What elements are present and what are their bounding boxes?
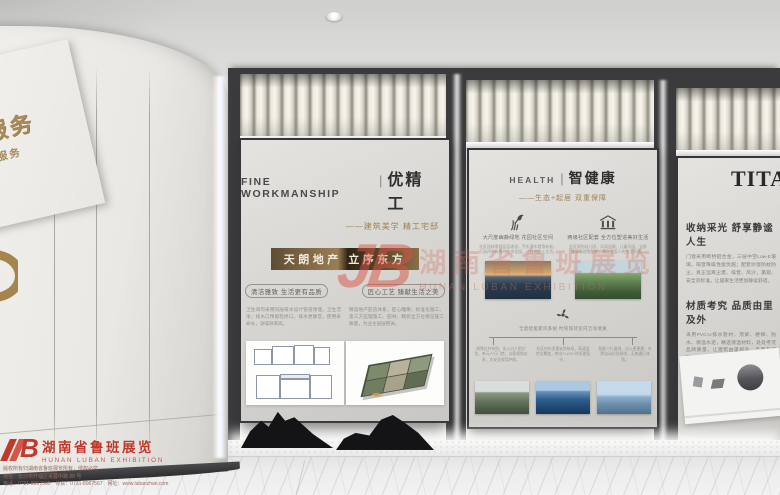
- panel-health: HEALTH | 智健康 ——生态+起居 双重保障 大尺度幽静绿地 花园社区空间…: [467, 148, 659, 429]
- material-samples-photo: [679, 348, 780, 424]
- smart-system-flowchart: 全屋智能新风系统 时刻保持室内洁净清爽 周界红外布防，出入口人脸识别，单元人行门…: [469, 307, 657, 417]
- panel1-para-right: 精选地产匠造体系，匠心雕琢；标准化施工、第三方监理施工、园林、精装全方位保证施工…: [349, 306, 444, 327]
- panel1-title: FINE WORKMANSHIP | 优精工: [241, 166, 441, 214]
- titan-brand-text: TITAN: [731, 166, 780, 192]
- health-left-caption: 大尺度幽静绿地 花园社区空间: [483, 234, 554, 241]
- city-towers-photo: [597, 381, 651, 414]
- flow-caption: 全屋智能新风系统 时刻保持室内洁净清爽: [469, 326, 657, 332]
- gold-logo-fragment: [0, 250, 18, 314]
- panel3-heading-2: 材质考究 品质由里及外: [686, 298, 780, 326]
- led-glow-strip: [658, 80, 668, 456]
- flow-item-1: 周界红外布防，出入口人脸识别，单元人行门禁，访客视频对讲，为安全保驾护航。: [473, 347, 529, 364]
- bird-reeds-icon: [508, 213, 528, 231]
- pleated-valance: [466, 80, 654, 142]
- brand-badge: 天朗地产 立序东方: [271, 248, 420, 270]
- panel1-para-left: 卫生间均采用同层排水设计管道预埋，卫生洁净；排水口预留检修口，排水更静音，使用寿…: [246, 306, 341, 327]
- pool-villa-photo: [536, 381, 590, 414]
- wall-panel-seam: [149, 66, 150, 458]
- panel2-subtitle: ——生态+起居 双重保障: [469, 193, 657, 203]
- panel3-heading-1: 收纳采光 舒享静谧人生: [686, 220, 780, 248]
- panel1-subtitle: ——建筑美学 精工宅邸: [241, 221, 439, 232]
- panel1-title-en: FINE WORKMANSHIP: [241, 176, 374, 200]
- floorplan-3d-image: [346, 341, 444, 405]
- panel3-para-1: 门窗采用断桥铝合金，三层中空Low-E玻璃，隔音降噪性能优越；配套纱窗防蚊防尘，…: [686, 254, 776, 286]
- led-glow-strip: [452, 74, 462, 456]
- pleated-valance: [676, 88, 780, 150]
- pavilion-icon: [598, 213, 618, 231]
- entrance-gate-photo: [475, 381, 529, 414]
- health-left-text: 社区园林景观层层递进，乔木灌木错落有致，打造四季有景的生态花园，让自然融入生活。: [478, 244, 558, 258]
- health-column-community: 两级社区配套 全方位塑造美好生活 社区规划幼儿园、风雨连廊、儿童乐园、全龄健身场…: [568, 213, 648, 299]
- title-divider: |: [560, 171, 563, 186]
- pill-right: 匠心工艺 臻献生活之美: [362, 284, 445, 298]
- service-sign-small-text: 尊享服务: [0, 144, 23, 170]
- flow-item-2: 社区内外多重安防体系，高清监控全覆盖，物业7×24小时巡更值守。: [535, 347, 591, 364]
- led-glow-strip: [212, 76, 228, 458]
- panel1-title-cn: 优精工: [387, 166, 441, 214]
- exhibition-hall-render: FINE WORKMANSHIP | 优精工 ——建筑美学 精工宅邸 天朗地产 …: [0, 0, 780, 495]
- title-divider: |: [379, 173, 382, 188]
- wall-panel-seam: [0, 414, 223, 436]
- panel2-title: HEALTH | 智健康: [469, 168, 657, 188]
- kitchen-linework-image: [246, 341, 344, 405]
- ceiling-downlight: [326, 12, 342, 21]
- green-park-photo: [575, 261, 641, 299]
- panel2-title-cn: 智健康: [569, 168, 617, 188]
- lake-dusk-photo: [485, 261, 551, 299]
- health-right-text: 社区规划幼儿园、风雨连廊、儿童乐园、全龄健身场地等配套，满足全家人的生活所需。: [568, 244, 648, 258]
- panel2-title-en: HEALTH: [509, 175, 555, 185]
- health-right-caption: 两级社区配套 全方位塑造美好生活: [567, 234, 648, 241]
- ceiling-fan-icon: [555, 307, 571, 323]
- wall-panel-seam: [96, 66, 97, 458]
- flow-item-3: 智能人行道闸，出入更便捷；车牌自动识别系统，无感通行体验。: [597, 347, 653, 364]
- pleated-valance: [240, 74, 446, 136]
- panel-titan: TITAN 收纳采光 舒享静谧人生 门窗采用断桥铝合金，三层中空Low-E玻璃，…: [676, 156, 780, 442]
- pill-left: 清洁雅致 生活更有品质: [245, 284, 328, 298]
- isometric-floorplan: [360, 354, 432, 398]
- feature-pills: 清洁雅致 生活更有品质 匠心工艺 臻献生活之美: [245, 284, 445, 298]
- panel-fine-workmanship: FINE WORKMANSHIP | 优精工 ——建筑美学 精工宅邸 天朗地产 …: [239, 138, 451, 423]
- panel1-paragraphs: 卫生间均采用同层排水设计管道预埋，卫生洁净；排水口预留检修口，排水更静音，使用寿…: [246, 306, 444, 327]
- health-column-ecology: 大尺度幽静绿地 花园社区空间 社区园林景观层层递进，乔木灌木错落有致，打造四季有…: [478, 213, 558, 299]
